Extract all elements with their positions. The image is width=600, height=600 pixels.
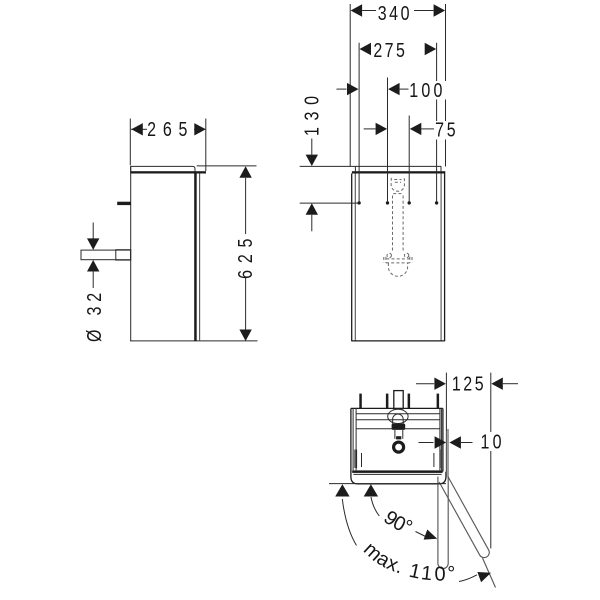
svg-text:265: 265 <box>147 118 194 140</box>
svg-text:275: 275 <box>373 39 407 61</box>
svg-text:100: 100 <box>409 79 445 101</box>
svg-text:75: 75 <box>435 119 458 141</box>
svg-text:125: 125 <box>452 373 486 395</box>
svg-text:10: 10 <box>481 431 505 453</box>
svg-text:Ø 32: Ø 32 <box>83 288 105 342</box>
svg-text:340: 340 <box>378 2 412 24</box>
svg-text:130: 130 <box>301 89 323 136</box>
svg-text:625: 625 <box>234 232 256 279</box>
svg-text:110°: 110° <box>407 560 460 586</box>
